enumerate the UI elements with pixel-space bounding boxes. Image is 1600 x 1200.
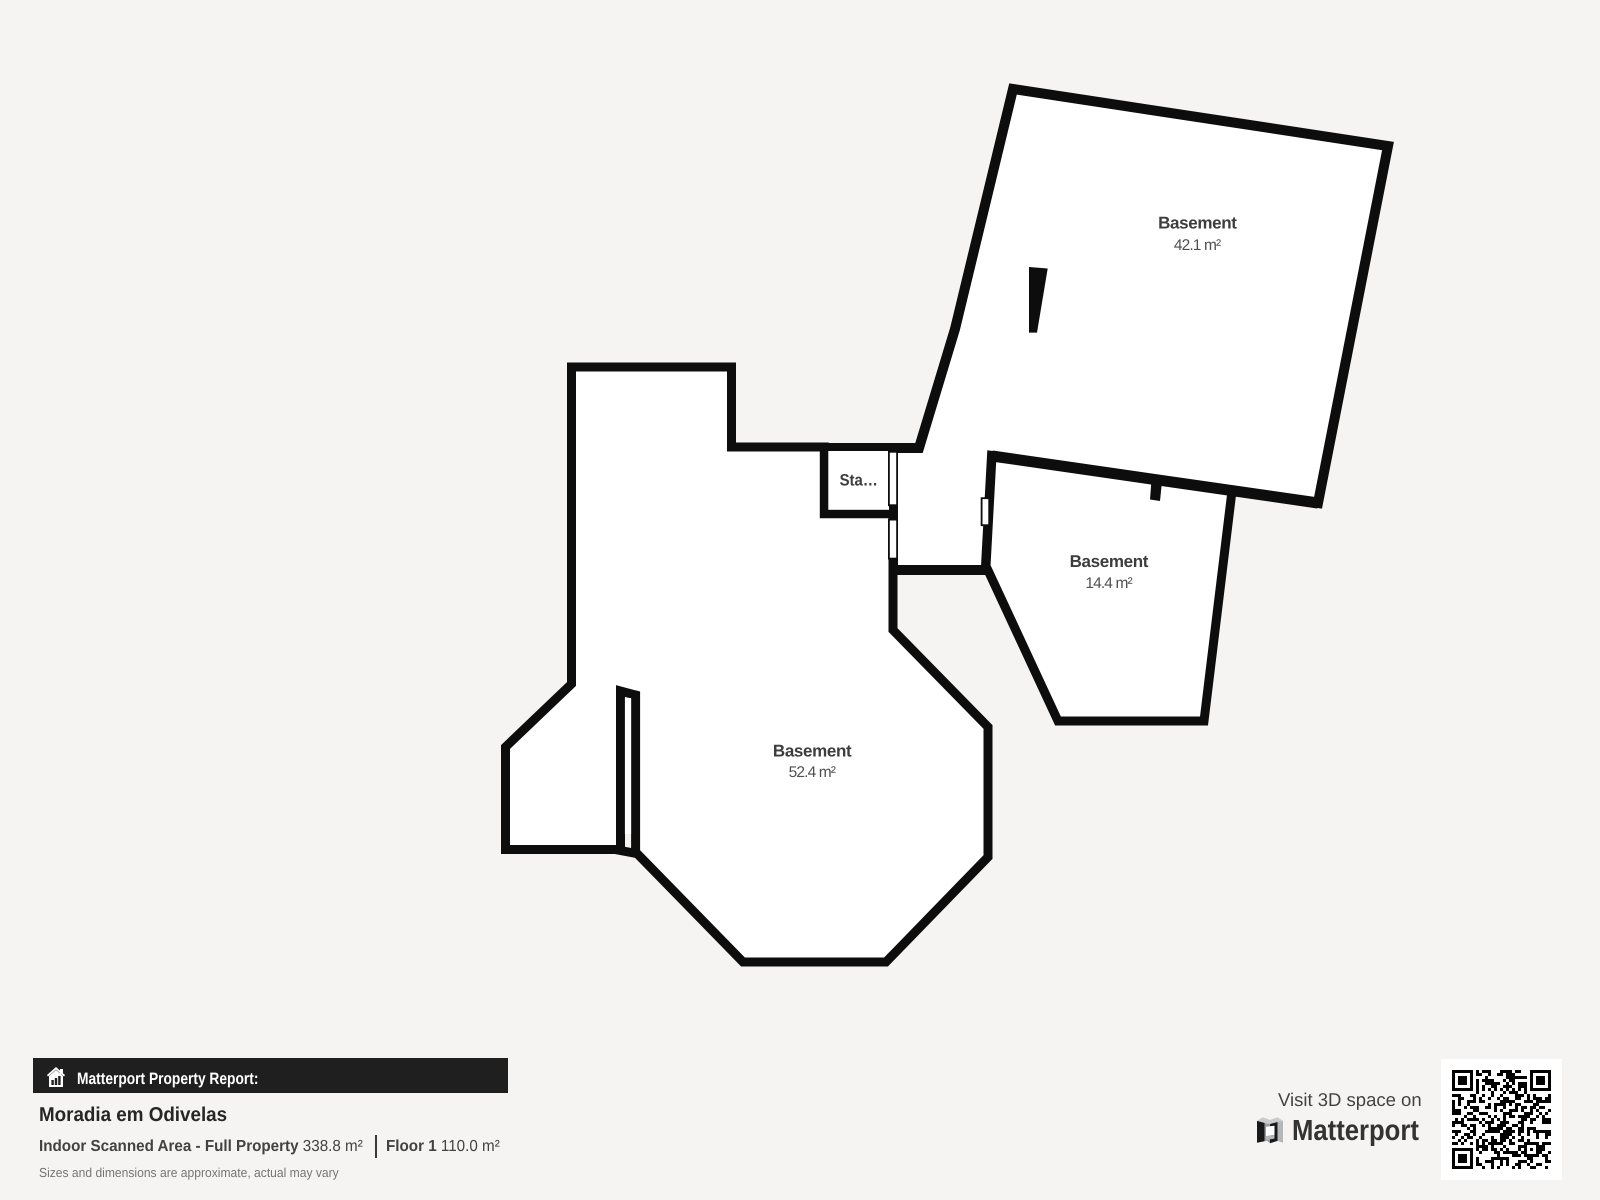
svg-text:52.4 m²: 52.4 m²	[789, 764, 836, 781]
svg-text:14.4 m²: 14.4 m²	[1085, 575, 1132, 592]
svg-text:Sta…: Sta…	[840, 472, 878, 490]
svg-text:Basement: Basement	[773, 741, 852, 760]
svg-text:Basement: Basement	[1070, 552, 1149, 571]
svg-text:42.1 m²: 42.1 m²	[1174, 237, 1221, 254]
svg-text:Basement: Basement	[1158, 214, 1237, 233]
